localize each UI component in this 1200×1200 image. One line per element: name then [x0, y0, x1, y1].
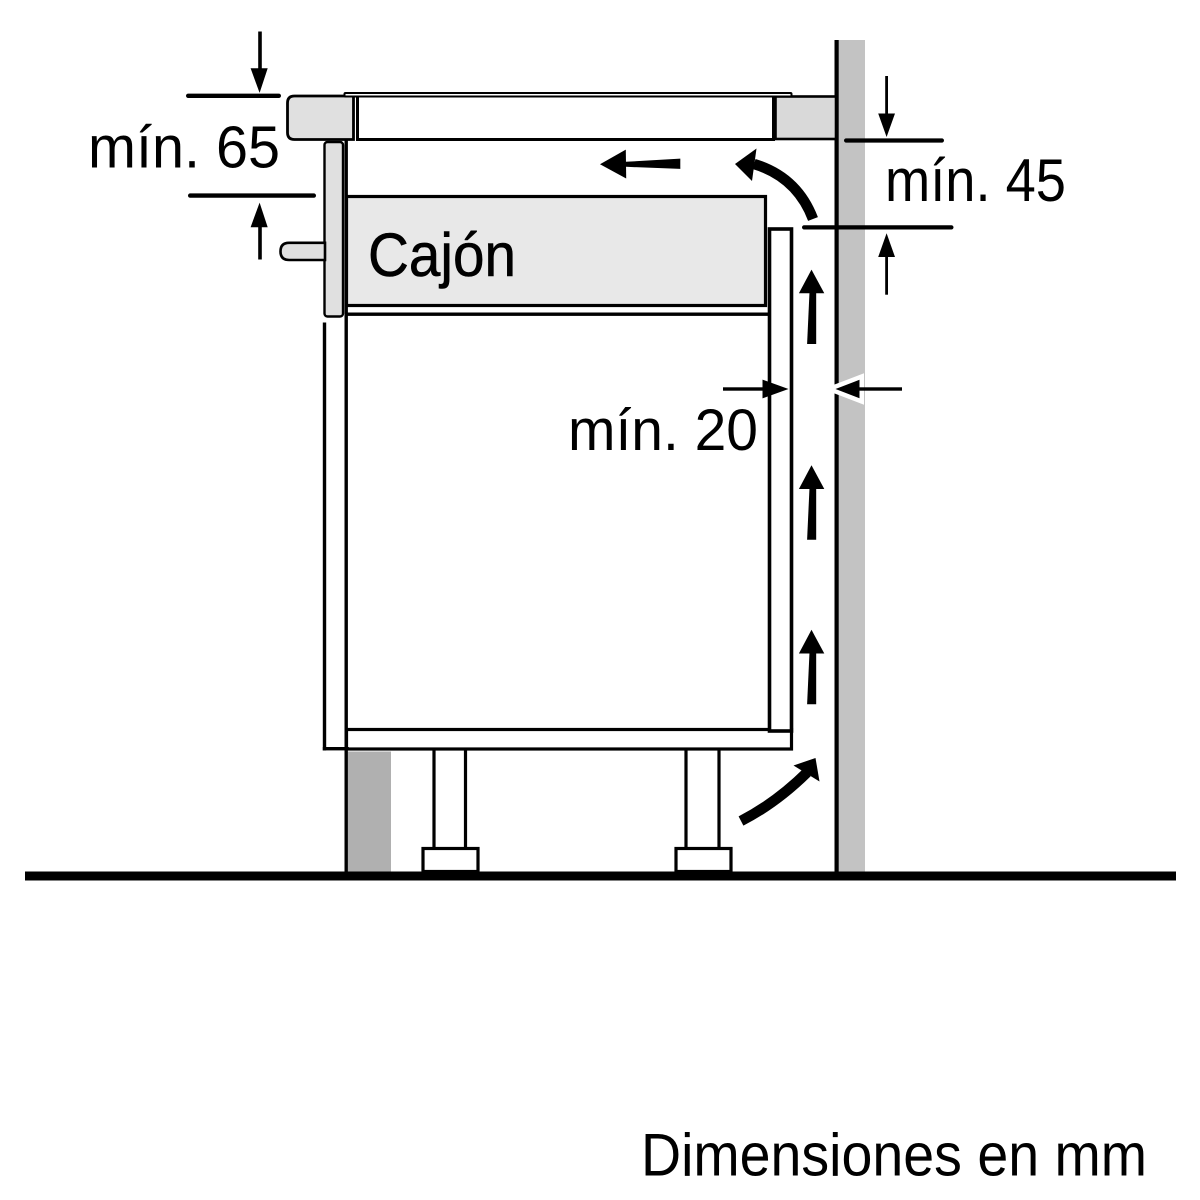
svg-text:Cajón: Cajón: [368, 221, 516, 290]
svg-text:mín. 65: mín. 65: [88, 115, 280, 181]
svg-text:mín. 20: mín. 20: [568, 398, 758, 463]
svg-text:mín. 45: mín. 45: [885, 147, 1066, 214]
svg-text:Dimensiones en mm: Dimensiones en mm: [641, 1121, 1147, 1188]
